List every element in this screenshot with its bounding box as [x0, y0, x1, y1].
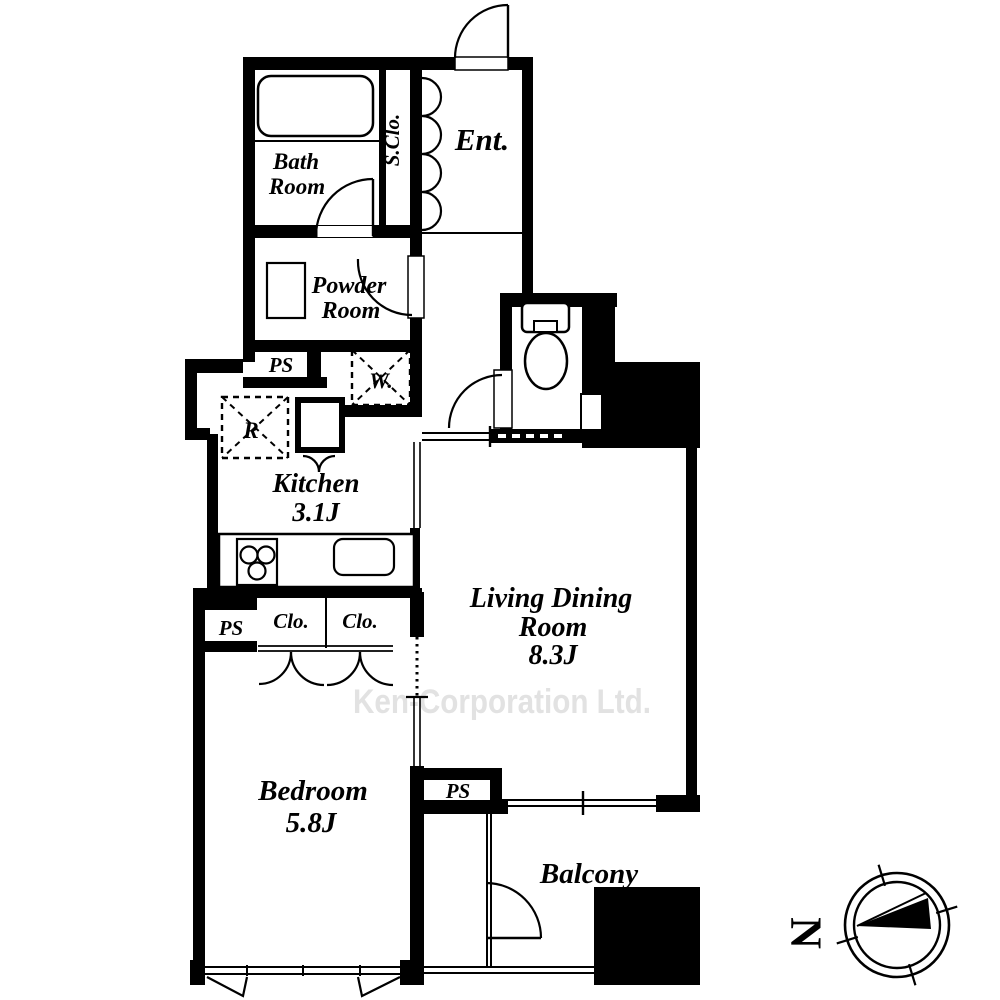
- wall-segment: [410, 70, 422, 232]
- stove-burner: [241, 547, 258, 564]
- stove-burner: [249, 563, 266, 580]
- floor-plan-page: Ken-Corporation Ltd.: [0, 0, 1000, 1000]
- toilet-flush-panel: [534, 321, 557, 332]
- kitchen-label: Kitchen: [271, 468, 359, 498]
- wall-segment: [500, 307, 512, 372]
- structural-column: [607, 362, 700, 448]
- bedroom-label: Bedroom: [257, 775, 368, 807]
- living-dining-size-label: 8.3J: [529, 640, 579, 671]
- wall-segment: [185, 359, 243, 373]
- wall-segment: [345, 405, 422, 417]
- washer-label: W.: [369, 368, 392, 393]
- wall-segment: [207, 434, 218, 590]
- toilet-cabinet: [581, 394, 602, 430]
- wall-segment: [243, 57, 255, 362]
- living-dining-label: Room: [518, 612, 587, 643]
- wall-segment: [185, 373, 197, 435]
- wall-segment: [193, 598, 205, 968]
- wall-segment: [243, 57, 456, 70]
- kitchen-size-label: 3.1J: [291, 497, 341, 527]
- bathtub: [258, 76, 373, 136]
- toilet-door-leaf: [494, 370, 512, 428]
- wall-segment: [410, 592, 424, 637]
- wall-segment: [195, 598, 257, 610]
- closet1-label: Clo.: [273, 609, 309, 633]
- wall-segment: [193, 588, 422, 598]
- powder-room-label: Room: [321, 298, 381, 324]
- wall-segment: [190, 960, 205, 985]
- wall-segment: [195, 641, 257, 652]
- bath-door-opening: [317, 226, 373, 238]
- ps-bottom-label: PS: [445, 779, 471, 803]
- ps-top-label: PS: [268, 353, 294, 377]
- wall-segment: [243, 225, 317, 238]
- powder-door-leaf: [408, 256, 424, 318]
- watermark-text: Ken-Corporation Ltd.: [353, 683, 651, 721]
- bath-room-label: Room: [268, 174, 325, 199]
- structural-column: [594, 887, 700, 985]
- wall-segment: [307, 340, 321, 388]
- floor-plan-svg: Ken-Corporation Ltd.: [0, 0, 1000, 1000]
- wall-segment: [410, 238, 422, 258]
- wall-segment: [686, 448, 697, 800]
- refrigerator-label: R: [242, 418, 258, 443]
- closet2-label: Clo.: [342, 609, 378, 633]
- bath-room-label: Bath: [272, 149, 319, 174]
- stove-burner: [258, 547, 275, 564]
- ps-mid-label: PS: [218, 616, 244, 640]
- wall-segment: [185, 428, 210, 440]
- entrance-door-opening: [455, 57, 508, 70]
- wall-segment: [373, 225, 422, 238]
- toilet-bowl: [525, 333, 567, 389]
- wall-segment: [243, 340, 422, 352]
- compass-north-label: N: [782, 917, 831, 949]
- kitchen-sink: [334, 539, 394, 575]
- wall-segment: [522, 57, 533, 307]
- shoe-closet-label: S.Clo.: [380, 114, 404, 167]
- bedroom-size-label: 5.8J: [286, 807, 338, 839]
- balcony-label: Balcony: [539, 858, 638, 890]
- powder-room-label: Powder: [311, 273, 387, 299]
- washbasin: [267, 263, 305, 318]
- entrance-label: Ent.: [454, 122, 509, 157]
- kitchen-service-box: [298, 400, 342, 450]
- living-dining-label: Living Dining: [469, 583, 633, 614]
- wall-segment: [410, 766, 424, 985]
- wall-segment: [400, 960, 422, 985]
- wall-segment: [410, 317, 422, 417]
